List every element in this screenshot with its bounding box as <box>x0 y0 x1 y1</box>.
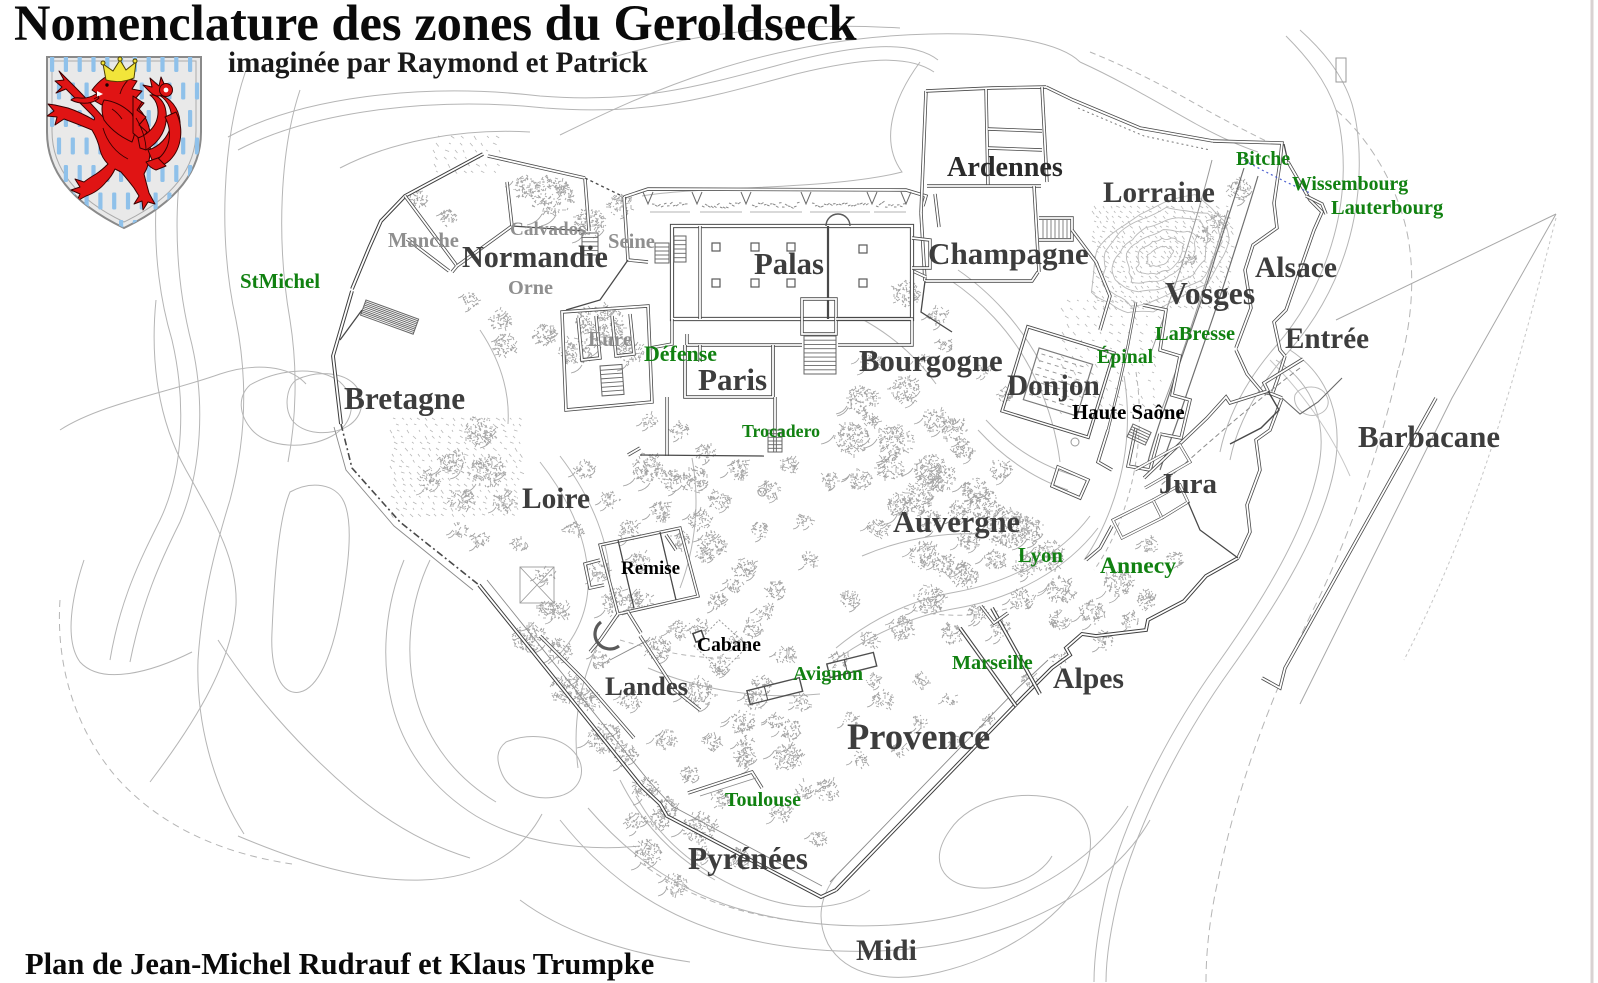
svg-text:Marseille: Marseille <box>952 652 1033 674</box>
svg-text:Épinal: Épinal <box>1097 346 1154 368</box>
svg-text:Entrée: Entrée <box>1285 323 1369 355</box>
svg-text:Lyon: Lyon <box>1018 545 1063 567</box>
svg-text:Trocadero: Trocadero <box>742 421 820 441</box>
svg-text:Alsace: Alsace <box>1255 252 1337 284</box>
svg-text:Annecy: Annecy <box>1100 553 1176 579</box>
svg-text:Auvergne: Auvergne <box>893 505 1020 539</box>
svg-text:Haute Saône: Haute Saône <box>1072 401 1185 424</box>
svg-text:Paris: Paris <box>698 362 767 397</box>
svg-text:Loire: Loire <box>522 483 590 515</box>
svg-text:Midi: Midi <box>856 935 917 967</box>
svg-text:Palas: Palas <box>754 247 824 281</box>
svg-text:Eure: Eure <box>588 327 632 351</box>
svg-text:Alpes: Alpes <box>1053 663 1124 695</box>
svg-text:Défense: Défense <box>644 341 717 366</box>
svg-text:Nomenclature des zones du Gero: Nomenclature des zones du Geroldseck <box>14 0 857 51</box>
svg-text:Barbacane: Barbacane <box>1358 420 1500 454</box>
svg-text:Seine: Seine <box>608 231 655 253</box>
svg-text:Orne: Orne <box>508 277 553 299</box>
svg-text:Lauterbourg: Lauterbourg <box>1331 197 1443 219</box>
svg-text:Vosges: Vosges <box>1165 276 1255 311</box>
svg-text:Ardennes: Ardennes <box>947 152 1063 183</box>
svg-text:Avignon: Avignon <box>793 663 863 685</box>
svg-text:Bretagne: Bretagne <box>344 381 465 416</box>
svg-text:imaginée par Raymond et Patric: imaginée par Raymond et Patrick <box>228 47 648 79</box>
svg-text:Toulouse: Toulouse <box>725 789 801 811</box>
svg-text:Remise: Remise <box>621 558 680 579</box>
svg-text:Bitche: Bitche <box>1236 148 1290 170</box>
svg-text:Landes: Landes <box>605 671 688 701</box>
svg-text:Pyrénées: Pyrénées <box>688 841 808 876</box>
svg-text:Manche: Manche <box>388 230 459 252</box>
svg-text:Donjon: Donjon <box>1007 370 1100 402</box>
svg-text:LaBresse: LaBresse <box>1155 323 1235 345</box>
svg-text:Plan de Jean-Michel Rudrauf et: Plan de Jean-Michel Rudrauf et Klaus Tru… <box>25 947 654 981</box>
svg-text:Champagne: Champagne <box>928 236 1089 271</box>
svg-text:Calvados: Calvados <box>510 219 586 240</box>
svg-text:Normandie: Normandie <box>462 240 608 274</box>
svg-text:Lorraine: Lorraine <box>1103 177 1215 209</box>
svg-text:Provence: Provence <box>847 716 990 757</box>
svg-text:StMichel: StMichel <box>240 269 320 293</box>
svg-text:Jura: Jura <box>1159 468 1218 500</box>
svg-text:Wissembourg: Wissembourg <box>1292 173 1408 195</box>
svg-text:Bourgogne: Bourgogne <box>859 344 1003 378</box>
svg-text:Cabane: Cabane <box>697 635 761 656</box>
